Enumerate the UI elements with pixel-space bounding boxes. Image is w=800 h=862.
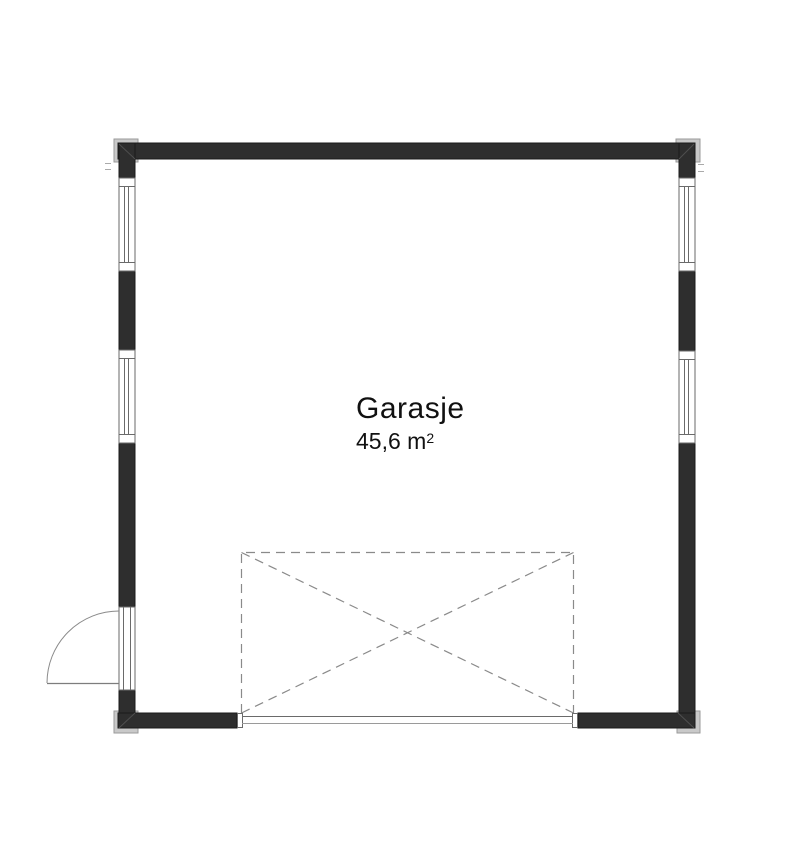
- entry-door: [47, 607, 135, 690]
- garage-jamb-left: [238, 714, 243, 728]
- window-glazing: [125, 187, 129, 263]
- wall-bottom-right-segment: [578, 713, 695, 728]
- window-left-lower: [119, 350, 135, 443]
- window-right-upper: [679, 178, 695, 271]
- garage-opening-gap: [237, 713, 578, 728]
- room-area: 45,6 m2: [356, 429, 465, 453]
- garage-door-opening: [237, 713, 578, 728]
- garage-jamb-right: [573, 714, 578, 728]
- window-glazing: [685, 360, 689, 435]
- room-area-value: 45,6 m: [356, 428, 426, 454]
- wall-bottom-left-segment: [118, 713, 237, 728]
- floor-plan: Garasje 45,6 m2: [0, 0, 800, 862]
- door-swing-arc-icon: [47, 611, 119, 683]
- window-left-upper: [119, 178, 135, 271]
- window-glazing: [685, 187, 689, 263]
- door-opening: [119, 607, 135, 690]
- tiny-annotation-marks: [105, 164, 704, 172]
- window-glazing: [125, 359, 129, 435]
- window-right-lower: [679, 351, 695, 443]
- room-name: Garasje: [356, 393, 465, 425]
- garage-door-dashed-area: [242, 553, 574, 714]
- room-area-superscript: 2: [426, 430, 434, 446]
- wall-top: [118, 143, 695, 159]
- dashed-diagonal: [242, 553, 574, 714]
- room-label: Garasje 45,6 m2: [356, 393, 465, 453]
